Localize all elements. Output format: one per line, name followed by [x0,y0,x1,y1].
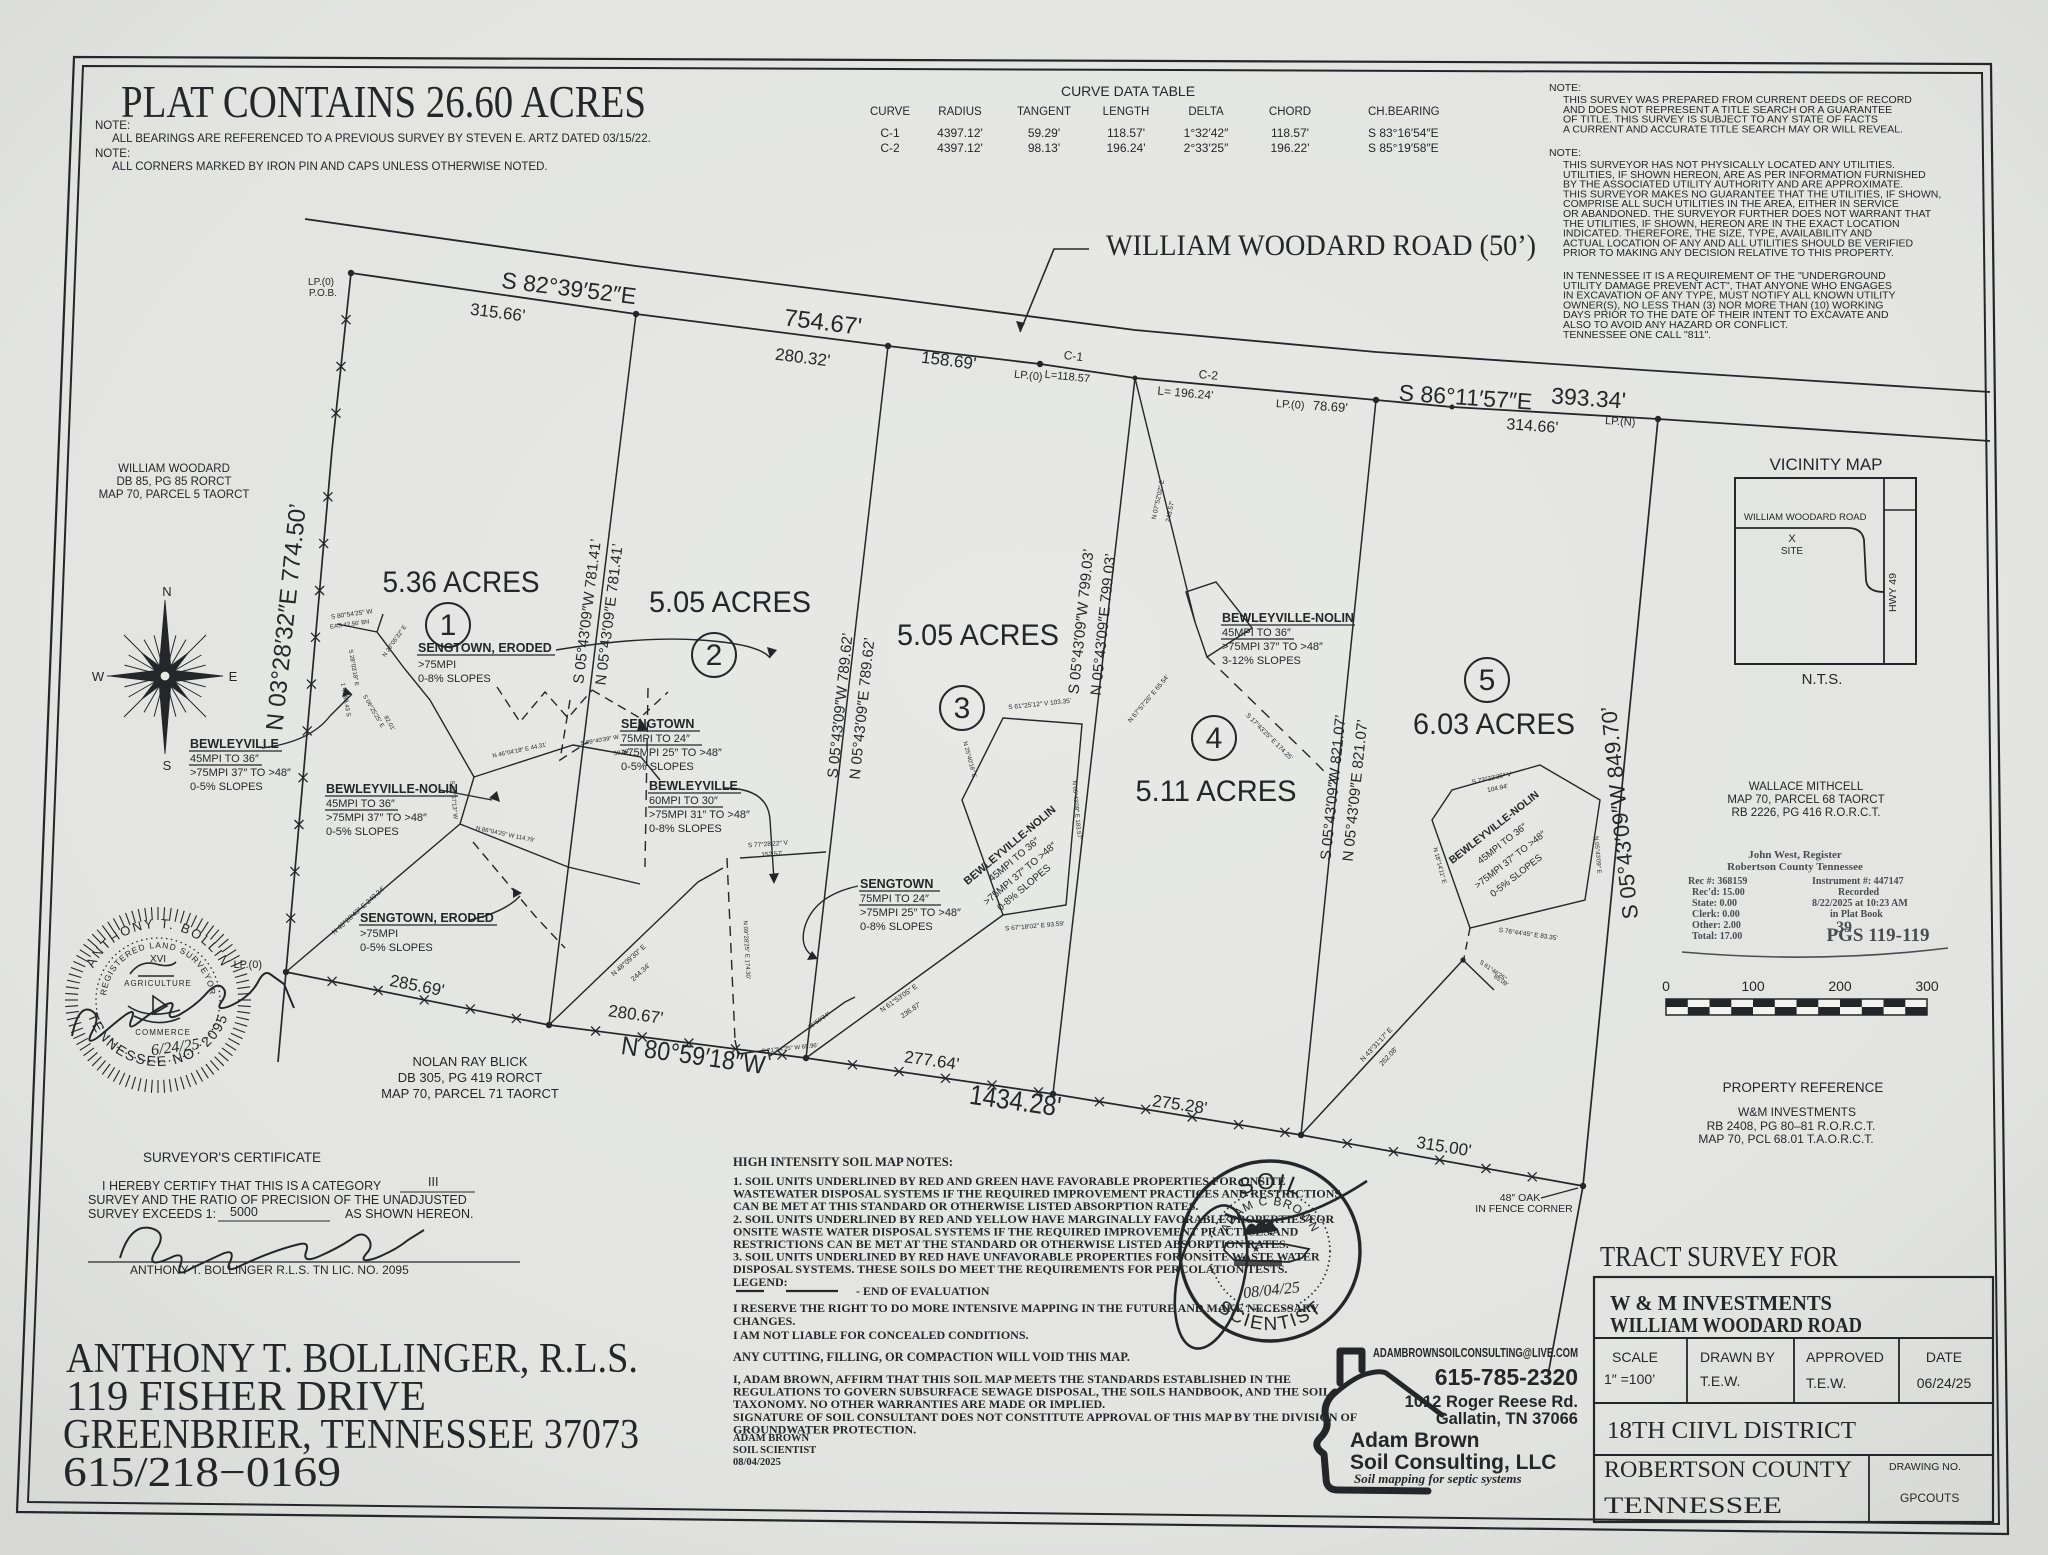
svg-text:X: X [1788,533,1796,545]
svg-text:RB 2226, PG 416 R.O.R.C.T.: RB 2226, PG 416 R.O.R.C.T. [1732,807,1881,819]
svg-text:393.34': 393.34' [1550,382,1626,413]
svg-text:WILLIAM WOODARD ROAD: WILLIAM WOODARD ROAD [1610,1313,1862,1337]
svg-text:78.69': 78.69' [1312,398,1348,415]
svg-text:BEWLEYVILLE-NOLIN: BEWLEYVILLE-NOLIN [326,782,458,796]
svg-text:5: 5 [1479,664,1496,697]
svg-text:ADAMBROWNSOILCONSULTING@LIVE.C: ADAMBROWNSOILCONSULTING@LIVE.COM [1373,1346,1578,1360]
svg-text:CH.BEARING: CH.BEARING [1368,106,1440,118]
svg-text:I AM NOT LIABLE FOR CONCEALED: I AM NOT LIABLE FOR CONCEALED CONDITIONS… [733,1328,1029,1342]
svg-text:1″ =100’: 1″ =100’ [1604,1371,1655,1387]
svg-text:SURVEY EXCEEDS 1:: SURVEY EXCEEDS 1: [88,1207,216,1221]
svg-text:0-8% SLOPES: 0-8% SLOPES [860,921,933,933]
svg-text:Rec'd: 15.00: Rec'd: 15.00 [1692,887,1745,898]
svg-text:SENGTOWN, ERODED: SENGTOWN, ERODED [360,911,494,925]
svg-text:LENGTH: LENGTH [1103,106,1150,118]
svg-text:59.29': 59.29' [1028,126,1060,140]
svg-text:98.13': 98.13' [1028,141,1060,155]
svg-text:P.O.B.: P.O.B. [309,288,337,299]
svg-text:45MPI TO 36″: 45MPI TO 36″ [190,753,259,765]
svg-text:>75MPI 37″ TO >48″: >75MPI 37″ TO >48″ [190,767,291,779]
svg-text:C-2: C-2 [1198,367,1219,383]
svg-text:N: N [162,584,171,599]
svg-text:WILLIAM WOODARD ROAD (50’): WILLIAM WOODARD ROAD (50’) [1106,229,1536,262]
svg-text:WILLIAM WOODARD: WILLIAM WOODARD [118,463,230,475]
svg-text:615-785-2320: 615-785-2320 [1435,1364,1578,1390]
svg-text:WILLIAM WOODARD ROAD: WILLIAM WOODARD ROAD [1744,512,1867,523]
svg-text:SITE: SITE [1781,546,1804,557]
svg-text:SCALE: SCALE [1612,1349,1658,1365]
svg-text:S 85°19′58″E: S 85°19′58″E [1368,141,1439,155]
svg-text:DATE: DATE [1926,1349,1962,1365]
svg-text:100: 100 [1741,978,1765,994]
svg-text:RADIUS: RADIUS [938,106,982,118]
svg-text:W&M INVESTMENTS: W&M INVESTMENTS [1738,1105,1856,1119]
svg-text:W & M INVESTMENTS: W & M INVESTMENTS [1610,1291,1832,1315]
svg-text:MAP 70, PARCEL 5 TAORCT: MAP 70, PARCEL 5 TAORCT [99,489,250,501]
svg-text:06/24/25: 06/24/25 [1917,1375,1972,1391]
svg-text:>75MPI: >75MPI [418,659,456,671]
svg-text:S 83°16′54″E: S 83°16′54″E [1368,126,1439,140]
svg-text:Soil mapping for septic system: Soil mapping for septic systems [1354,1471,1522,1486]
svg-text:CURVE DATA TABLE: CURVE DATA TABLE [1061,83,1195,99]
svg-text:5.05 ACRES: 5.05 ACRES [897,619,1059,652]
svg-text:SURVEYOR'S CERTIFICATE: SURVEYOR'S CERTIFICATE [143,1150,321,1165]
svg-text:SOIL SCIENTIST: SOIL SCIENTIST [733,1445,816,1456]
svg-text:4397.12': 4397.12' [937,126,983,140]
svg-text:314.66': 314.66' [1506,416,1559,437]
svg-text:PROPERTY REFERENCE: PROPERTY REFERENCE [1723,1080,1884,1095]
svg-text:Robertson County Tennessee: Robertson County Tennessee [1727,861,1863,873]
svg-text:GPCOUTS: GPCOUTS [1900,1491,1959,1505]
svg-text:TANGENT: TANGENT [1017,106,1071,118]
svg-text:AGRICULTURE: AGRICULTURE [124,979,192,988]
svg-text:MAP 70, PARCEL 71 TAORCT: MAP 70, PARCEL 71 TAORCT [381,1086,559,1101]
svg-text:Rec #: 368159: Rec #: 368159 [1688,876,1747,887]
svg-text:DB 305, PG 419 RORCT: DB 305, PG 419 RORCT [398,1070,543,1085]
svg-text:NOTE:: NOTE: [95,120,130,132]
svg-text:TENNESSEE ONE CALL "811".: TENNESSEE ONE CALL "811". [1563,329,1711,341]
svg-text:0-5% SLOPES: 0-5% SLOPES [360,942,433,954]
svg-text:DELTA: DELTA [1188,106,1224,118]
svg-text:5.11 ACRES: 5.11 ACRES [1136,775,1297,808]
svg-text:DRAWN BY: DRAWN BY [1700,1349,1776,1365]
svg-text:75MPI TO 24″: 75MPI TO 24″ [860,893,929,905]
svg-text:PLAT CONTAINS 26.60 ACRES: PLAT CONTAINS 26.60 ACRES [121,76,646,127]
svg-text:45MPI TO 36″: 45MPI TO 36″ [326,798,395,810]
svg-text:3-12% SLOPES: 3-12% SLOPES [1222,655,1301,667]
svg-text:2: 2 [706,639,723,672]
svg-text:2°33′25″: 2°33′25″ [1184,141,1229,155]
svg-text:NOLAN RAY BLICK: NOLAN RAY BLICK [412,1054,527,1069]
svg-text:MAP 70, PCL 68.01 T.A.O.R.C.T.: MAP 70, PCL 68.01 T.A.O.R.C.T. [1698,1132,1873,1146]
svg-text:CURVE: CURVE [870,106,910,118]
svg-text:3: 3 [954,692,971,725]
svg-text:60MPI TO 30″: 60MPI TO 30″ [649,795,718,807]
svg-text:T.E.W.: T.E.W. [1700,1373,1740,1389]
svg-text:ANTHONY T. BOLLINGER R.L.S.: ANTHONY T. BOLLINGER R.L.S. TN LIC. NO. … [130,1263,409,1277]
svg-text:ADAM BROWN: ADAM BROWN [733,1433,810,1444]
svg-text:118.57': 118.57' [1271,126,1309,140]
svg-text:BEWLEYVILLE: BEWLEYVILLE [649,779,738,793]
svg-text:HWY 49: HWY 49 [1887,573,1899,612]
svg-text:0-5% SLOPES: 0-5% SLOPES [326,826,399,838]
svg-text:- END OF EVALUATION: - END OF EVALUATION [856,1284,990,1298]
svg-text:BEWLEYVILLE: BEWLEYVILLE [190,737,279,751]
svg-text:III: III [428,1175,438,1189]
svg-text:5.05 ACRES: 5.05 ACRES [649,586,811,619]
svg-text:T.E.W.: T.E.W. [1806,1375,1846,1391]
svg-text:★: ★ [1268,1230,1274,1238]
svg-text:TRACT SURVEY FOR: TRACT SURVEY FOR [1600,1241,1839,1273]
svg-text:4: 4 [1206,722,1223,755]
svg-text:State: 0.00: State: 0.00 [1692,898,1737,909]
svg-text:S: S [163,758,172,773]
svg-text:A CURRENT AND ACCURATE TITLE S: A CURRENT AND ACCURATE TITLE SEARCH MAY … [1563,123,1903,135]
svg-text:8/22/2025 at 10:23 AM: 8/22/2025 at 10:23 AM [1812,898,1908,909]
svg-text:HIGH INTENSITY SOIL MAP NOTES:: HIGH INTENSITY SOIL MAP NOTES: [733,1155,953,1169]
svg-text:300: 300 [1915,978,1939,994]
svg-text:TENNESSEE: TENNESSEE [1604,1493,1782,1518]
svg-text:0: 0 [1662,978,1670,994]
svg-text:LP.(0): LP.(0) [1276,398,1305,412]
svg-text:6.03 ACRES: 6.03 ACRES [1413,708,1575,741]
svg-text:C-2: C-2 [880,141,900,155]
svg-text:SENGTOWN, ERODED: SENGTOWN, ERODED [418,641,552,655]
svg-text:5000: 5000 [230,1205,258,1219]
svg-text:AS SHOWN HEREON.: AS SHOWN HEREON. [345,1207,474,1221]
svg-text:APPROVED: APPROVED [1806,1349,1884,1365]
svg-text:>75MPI 37″ TO >48″: >75MPI 37″ TO >48″ [326,812,427,824]
svg-text:I HEREBY CERTIFY THAT THIS: I HEREBY CERTIFY THAT THIS IS A CATEGORY [102,1179,382,1193]
svg-text:RB 2408, PG 80–81 R.O.R.C.T.: RB 2408, PG 80–81 R.O.R.C.T. [1707,1119,1876,1133]
svg-text:NOTE:: NOTE: [95,148,130,160]
svg-text:0-5% SLOPES: 0-5% SLOPES [190,781,263,793]
svg-text:John West, Register: John West, Register [1748,849,1842,861]
svg-text:W: W [92,669,105,684]
svg-text:DISPOSAL SYSTEMS. THESE SOILS: DISPOSAL SYSTEMS. THESE SOILS DO MEET TH… [733,1262,1287,1276]
svg-text:Recorded: Recorded [1838,887,1880,898]
svg-text:>75MPI: >75MPI [360,928,398,940]
svg-text:4397.12': 4397.12' [937,141,983,155]
svg-text:45MPI TO 36″: 45MPI TO 36″ [1222,627,1291,639]
svg-text:196.24': 196.24' [1107,141,1146,155]
svg-text:SENGTOWN: SENGTOWN [621,717,694,731]
svg-text:LP.(0): LP.(0) [233,959,262,971]
svg-text:>75MPI 37″ TO >48″: >75MPI 37″ TO >48″ [1222,641,1323,653]
svg-text:Gallatin, TN 37066: Gallatin, TN 37066 [1436,1410,1578,1428]
svg-text:CHANGES.: CHANGES. [733,1314,795,1328]
svg-text:C-1: C-1 [880,126,900,140]
svg-text:BEWLEYVILLE-NOLIN: BEWLEYVILLE-NOLIN [1222,611,1354,625]
svg-text:5.36 ACRES: 5.36 ACRES [383,566,540,599]
svg-text:ANY CUTTING, FILLING, OR COMPA: ANY CUTTING, FILLING, OR COMPACTION WILL… [733,1350,1130,1364]
svg-text:200: 200 [1828,978,1852,994]
svg-text:196.22': 196.22' [1271,141,1310,155]
svg-text:COMMERCE: COMMERCE [135,1028,191,1037]
svg-text:>75MPI 25″ TO >48″: >75MPI 25″ TO >48″ [621,747,722,759]
svg-text:615/218−0169: 615/218−0169 [63,1450,341,1496]
svg-text:Clerk: 0.00: Clerk: 0.00 [1692,909,1740,920]
svg-text:CHORD: CHORD [1269,106,1311,118]
svg-text:WALLACE MITHCELL: WALLACE MITHCELL [1749,781,1864,793]
svg-text:Other: 2.00: Other: 2.00 [1692,920,1741,931]
svg-text:E: E [229,669,238,684]
svg-text:0-5% SLOPES: 0-5% SLOPES [621,761,694,773]
svg-text:>75MPI 25″ TO >48″: >75MPI 25″ TO >48″ [860,907,961,919]
svg-text:ALL CORNERS MARKED BY IRON: ALL CORNERS MARKED BY IRON PIN AND CAPS … [112,161,548,173]
svg-text:118.57': 118.57' [1107,126,1145,140]
svg-text:MAP 70, PARCEL 68 TAORCT: MAP 70, PARCEL 68 TAORCT [1727,794,1884,806]
svg-text:0-8% SLOPES: 0-8% SLOPES [649,823,722,835]
svg-text:IN FENCE CORNER: IN FENCE CORNER [1475,1203,1573,1215]
svg-text:C-1: C-1 [1063,348,1084,364]
svg-text:1°32′42″: 1°32′42″ [1184,126,1229,140]
svg-text:PRIOR TO MAKING ANY DECISION R: PRIOR TO MAKING ANY DECISION RELATIVE TO… [1563,247,1894,259]
svg-text:DRAWING NO.: DRAWING NO. [1889,1461,1961,1473]
svg-text:Adam Brown: Adam Brown [1350,1429,1480,1452]
svg-text:08/04/2025: 08/04/2025 [733,1457,781,1468]
svg-text:DB 85, PG 85 RORCT: DB 85, PG 85 RORCT [116,476,231,488]
svg-text:Instrument #: 447147: Instrument #: 447147 [1812,876,1904,887]
svg-text:LEGEND:: LEGEND: [733,1275,788,1289]
svg-text:LP.(0): LP.(0) [308,277,334,288]
svg-text:75MPI TO 24″: 75MPI TO 24″ [621,733,690,745]
svg-text:NOTE:: NOTE: [1549,82,1581,94]
svg-text:SENGTOWN: SENGTOWN [860,877,933,891]
svg-text:SURVEY AND THE RATIO OF P: SURVEY AND THE RATIO OF PRECISION OF THE… [88,1193,467,1207]
svg-text:LP.(N): LP.(N) [1605,415,1636,429]
svg-text:PGS 119-119: PGS 119-119 [1827,925,1930,946]
svg-text:Total: 17.00: Total: 17.00 [1692,931,1742,942]
svg-text:0-8% SLOPES: 0-8% SLOPES [418,673,491,685]
svg-text:>75MPI 31″ TO >48″: >75MPI 31″ TO >48″ [649,809,750,821]
svg-text:VICINITY MAP: VICINITY MAP [1769,455,1882,474]
svg-text:ROBERTSON COUNTY: ROBERTSON COUNTY [1604,1457,1852,1482]
svg-text:1012 Roger Reese Rd.: 1012 Roger Reese Rd. [1405,1393,1578,1411]
svg-text:★: ★ [1252,1244,1261,1255]
svg-text:ALL BEARINGS ARE REFERENCED: ALL BEARINGS ARE REFERENCED TO A PREVIOU… [112,133,651,145]
svg-text:NOTE:: NOTE: [1549,147,1581,159]
svg-text:1: 1 [440,609,457,642]
svg-text:18TH CIIVL DISTRICT: 18TH CIIVL DISTRICT [1607,1418,1856,1444]
svg-text:N.T.S.: N.T.S. [1802,671,1843,688]
